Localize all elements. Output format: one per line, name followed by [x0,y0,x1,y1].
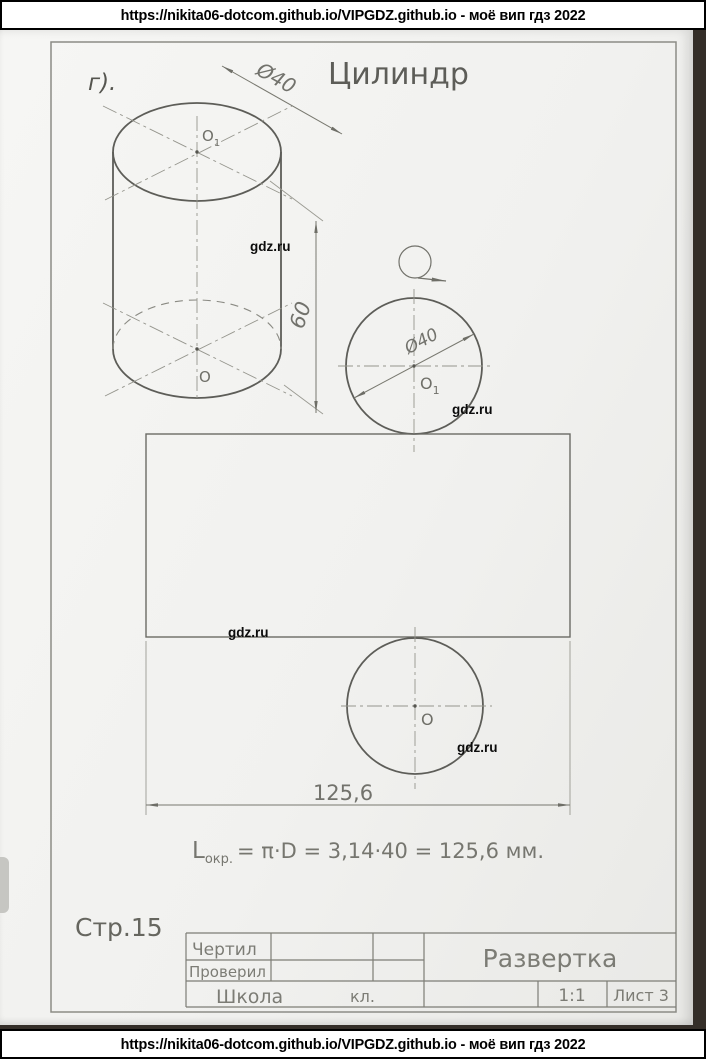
top-center-point [195,150,198,153]
footer-url-text: https://nikita06-dotcom.github.io/VIPGDZ… [121,1036,586,1053]
label-center-o1-iso: O1 [202,127,220,149]
drawing-frame [51,42,676,1012]
label-center-o-iso: O [199,368,211,386]
technical-drawing: O1 O Ø40 60 Ø40 O1 O [0,0,706,1059]
title-block-doc-title: Развертка [483,944,618,973]
development-rectangle [146,434,570,637]
footer-url-banner: https://nikita06-dotcom.github.io/VIPGDZ… [0,1029,706,1059]
watermark-gdz-3: gdz.ru [228,625,269,640]
dimension-length: 125,6 [146,641,570,815]
variant-label: г). [88,70,116,96]
dimension-diameter-iso: Ø40 [222,57,342,134]
label-center-o1-plan: O1 [420,374,440,397]
header-url-banner: https://nikita06-dotcom.github.io/VIPGDZ… [0,0,706,30]
watermark-gdz-4: gdz.ru [457,740,498,755]
page-number-label: Стр.15 [75,913,163,942]
header-url-text: https://nikita06-dotcom.github.io/VIPGDZ… [121,7,586,24]
title-block-scale: 1:1 [558,986,585,1006]
title-block-class: кл. [350,987,375,1006]
plan-view: Ø40 O1 [338,289,492,452]
title-block-school: Школа [216,986,283,1008]
dim-text-length: 125,6 [313,781,373,805]
dim-text-height: 60 [285,299,316,332]
circumference-formula: Lокр.= π·D = 3,14·40 = 125,6 мм. [192,838,544,867]
watermark-gdz-2: gdz.ru [452,402,493,417]
unroll-direction-symbol [399,246,446,281]
title-block-sheet: Лист 3 [613,986,669,1005]
watermark-gdz-1: gdz.ru [250,239,291,254]
title-block-text: Чертил Проверил Школа кл. Развертка 1:1 … [189,940,669,1008]
dimension-height: 60 [270,181,323,414]
bottom-center-point [195,347,198,350]
dim-text-dia-iso: Ø40 [252,57,301,98]
development-view: O [146,434,570,789]
title-block-checked: Проверил [189,963,266,981]
title-block-drew: Чертил [192,940,257,960]
label-center-o-dev: O [421,710,434,729]
drawing-title: Цилиндр [328,57,469,92]
